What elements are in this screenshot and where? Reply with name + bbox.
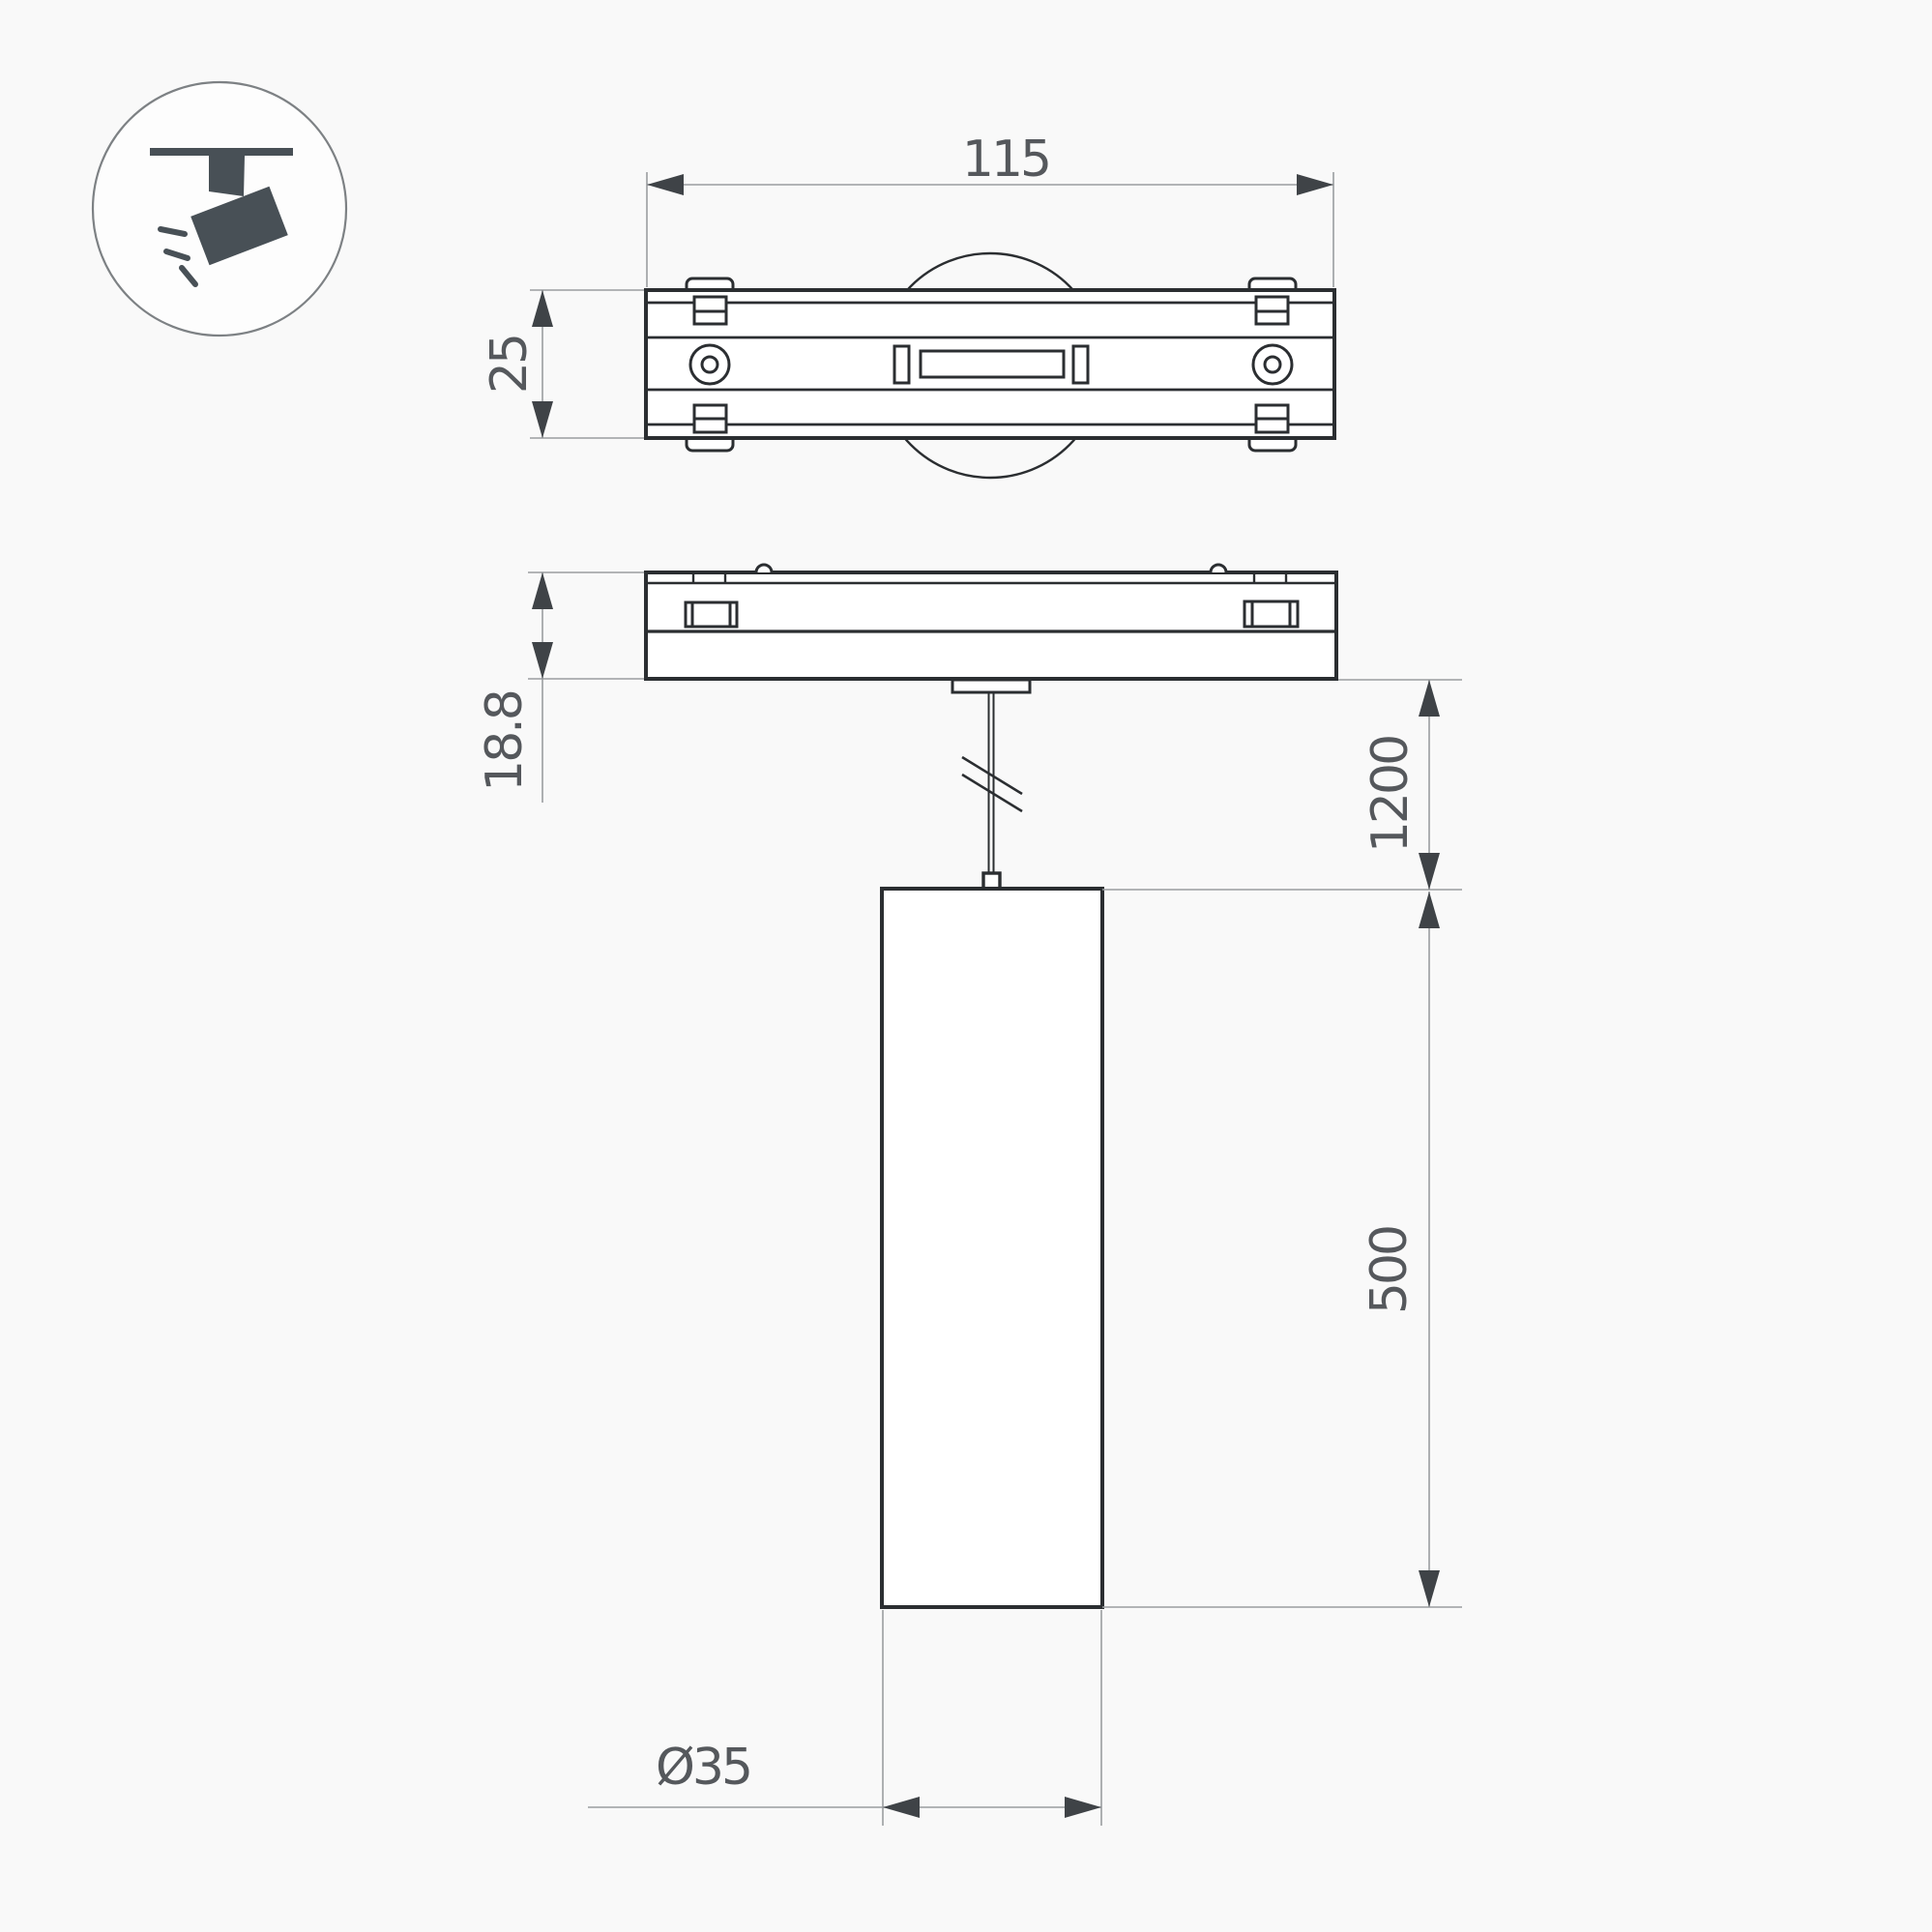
- wire-break-symbol: [962, 757, 1022, 811]
- dim-label-18-8: 18.8: [476, 691, 534, 792]
- dim-label-25: 25: [481, 336, 539, 394]
- side-view: [646, 565, 1336, 889]
- icon-stem: [209, 156, 245, 196]
- dimension-body-diameter: Ø35: [588, 1610, 1101, 1826]
- dimension-adapter-height: 18.8: [476, 572, 644, 803]
- pendant-cylinder: [882, 889, 1102, 1607]
- dimension-adapter-width: 25: [481, 290, 644, 438]
- screw-left: [690, 345, 729, 384]
- top-view: [646, 253, 1334, 478]
- wire-connector: [983, 873, 1000, 889]
- dim-label-d35: Ø35: [656, 1739, 750, 1797]
- pin-bump-right: [1211, 565, 1226, 572]
- pin-bump-left: [756, 565, 772, 572]
- dimension-adapter-length: 115: [647, 131, 1333, 287]
- dimension-suspension-length: 1200: [1102, 680, 1462, 890]
- adapter-body-side: [646, 572, 1336, 679]
- dim-label-500: 500: [1361, 1227, 1419, 1314]
- screw-right: [1253, 345, 1292, 384]
- track-spotlight-icon: [93, 82, 346, 336]
- contact-slot: [894, 346, 1088, 383]
- suspension-wire: [989, 692, 994, 873]
- dim-label-1200: 1200: [1361, 737, 1420, 853]
- dimension-body-height: 500: [1102, 892, 1462, 1607]
- suspension-plate: [952, 680, 1030, 692]
- drawing-canvas: 115 25: [0, 0, 1932, 1932]
- icon-track-bar: [150, 148, 293, 156]
- technical-drawing: 115 25: [0, 0, 1932, 1932]
- dim-label-115: 115: [962, 131, 1049, 189]
